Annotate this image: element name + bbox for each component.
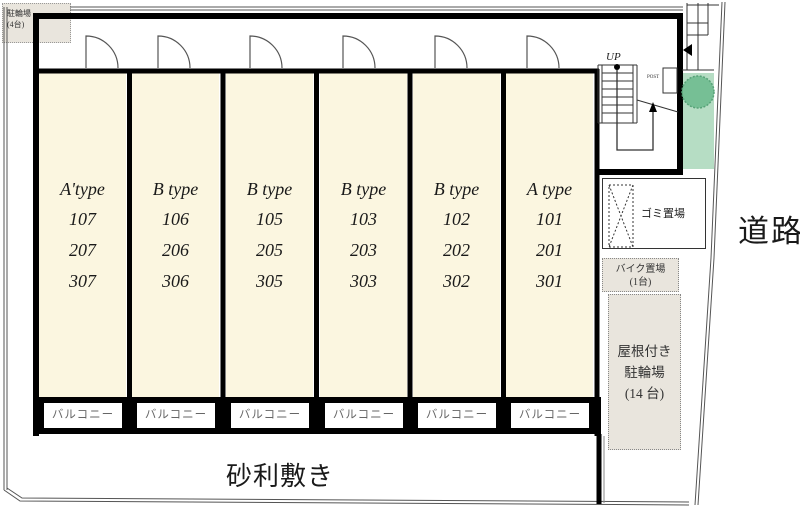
unit-column-107: A'type 107 207 307 [39, 71, 126, 397]
motorcycle-parking-capacity: (1台) [603, 276, 678, 289]
balcony-box: バルコニー [325, 403, 403, 428]
unit-column-102: B type 102 202 302 [413, 71, 500, 397]
unit-column-101: A type 101 201 301 [506, 71, 593, 397]
room-number: 301 [536, 266, 563, 297]
covered-bicycle-parking-box: 屋根付き 駐輪場 (14 台) [608, 294, 681, 450]
room-number: 202 [443, 235, 470, 266]
site-plan: 駐輪場 (4台) A'type 107 207 307 B type 106 2… [0, 0, 800, 517]
room-number: 103 [350, 204, 377, 235]
room-number: 102 [443, 204, 470, 235]
unit-type-label: B type [247, 174, 292, 204]
room-number: 206 [162, 235, 189, 266]
room-number: 205 [256, 235, 283, 266]
room-number: 303 [350, 266, 377, 297]
room-number: 307 [69, 266, 96, 297]
motorcycle-parking-name: バイク置場 [603, 263, 678, 276]
landscaping-strip [682, 73, 714, 169]
room-number: 207 [69, 235, 96, 266]
room-number: 305 [256, 266, 283, 297]
top-left-parking-name: 駐輪場 [7, 8, 70, 19]
balcony-box: バルコニー [137, 403, 215, 428]
motorcycle-parking-box: バイク置場 (1台) [602, 258, 679, 292]
unit-type-label: B type [434, 174, 479, 204]
covered-parking-line2: 駐輪場 [609, 362, 680, 383]
room-number: 203 [350, 235, 377, 266]
top-left-parking-capacity: (4台) [7, 19, 70, 30]
unit-column-103: B type 103 203 303 [320, 71, 407, 397]
room-number: 107 [69, 204, 96, 235]
room-number: 101 [536, 204, 563, 235]
room-number: 105 [256, 204, 283, 235]
covered-parking-line1: 屋根付き [609, 341, 680, 362]
balcony-box: バルコニー [511, 403, 589, 428]
top-left-bicycle-parking-box: 駐輪場 (4台) [2, 3, 71, 43]
balcony-box: バルコニー [418, 403, 496, 428]
unit-type-label: A'type [60, 174, 105, 204]
fills-layer: 駐輪場 (4台) A'type 107 207 307 B type 106 2… [0, 0, 800, 517]
balcony-box: バルコニー [44, 403, 122, 428]
covered-parking-capacity: (14 台) [609, 383, 680, 404]
room-number: 302 [443, 266, 470, 297]
unit-column-105: B type 105 205 305 [226, 71, 313, 397]
unit-type-label: B type [153, 174, 198, 204]
room-number: 201 [536, 235, 563, 266]
room-number: 306 [162, 266, 189, 297]
unit-type-label: A type [527, 174, 572, 204]
balcony-box: バルコニー [231, 403, 309, 428]
unit-column-106: B type 106 206 306 [132, 71, 219, 397]
room-number: 106 [162, 204, 189, 235]
unit-type-label: B type [341, 174, 386, 204]
garbage-area-box [602, 178, 706, 249]
